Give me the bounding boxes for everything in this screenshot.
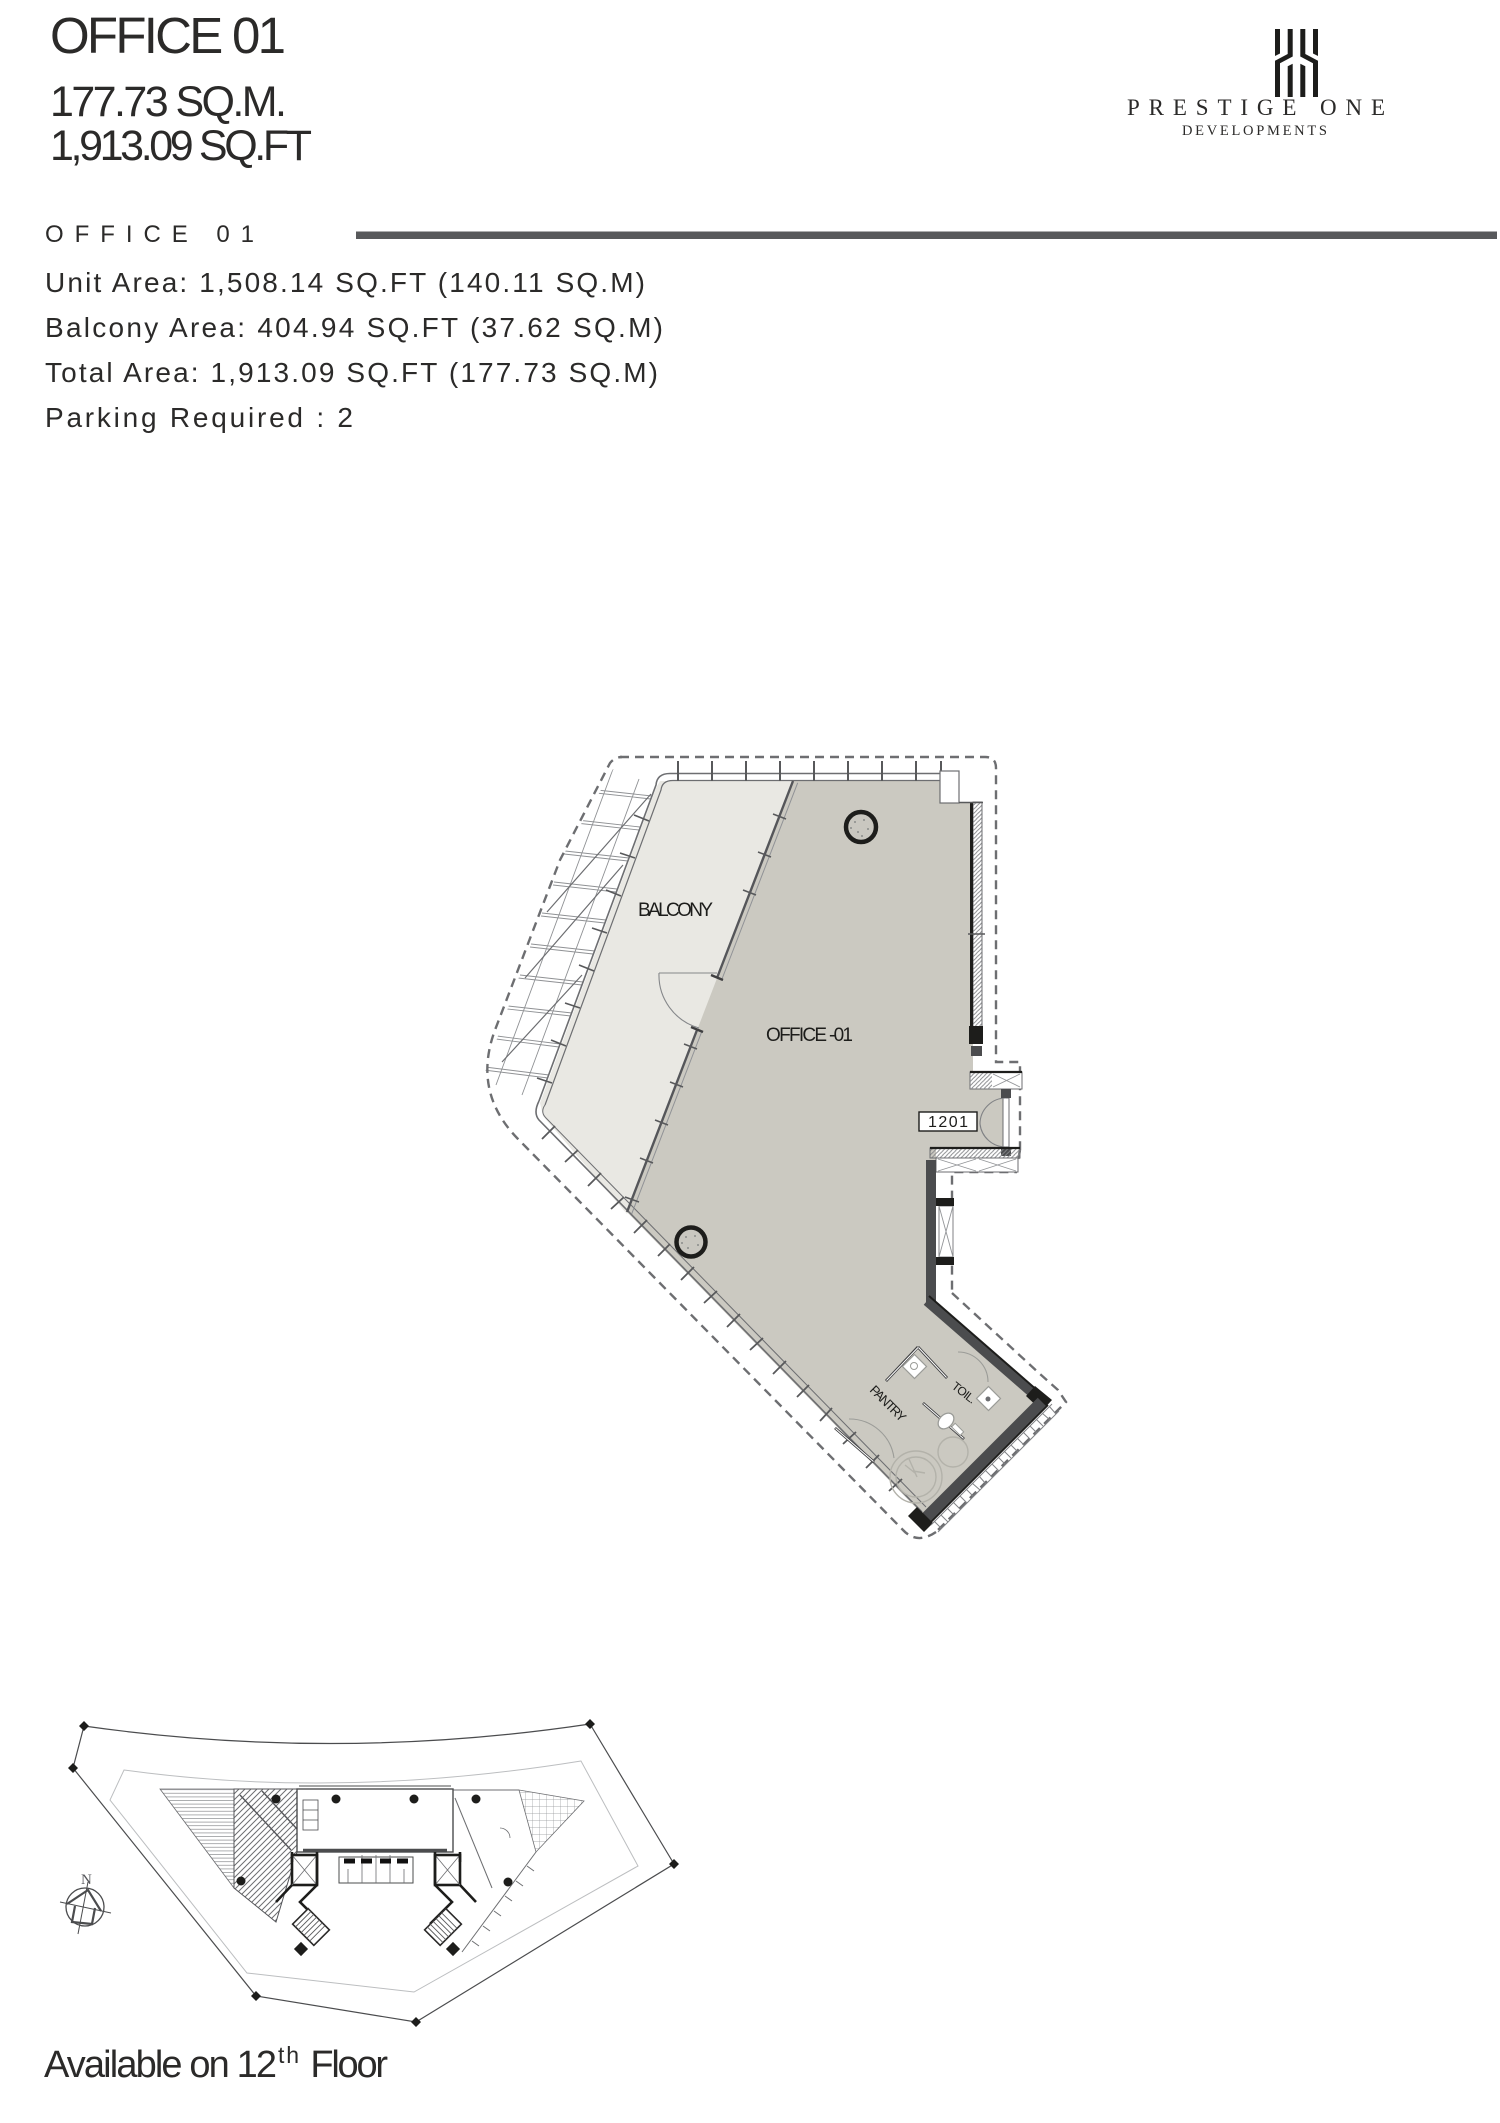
svg-text:OFFICE 01: OFFICE 01 <box>50 7 286 64</box>
svg-text:DEVELOPMENTS: DEVELOPMENTS <box>1182 123 1327 139</box>
svg-text:1201: 1201 <box>928 1114 968 1131</box>
svg-text:Unit Area: 1,508.14 SQ.FT (140: Unit Area: 1,508.14 SQ.FT (140.11 SQ.M) <box>45 267 645 298</box>
svg-text:Available on 12: Available on 12 <box>44 2044 277 2086</box>
svg-text:O F F I C E 0 1: O F F I C E 0 1 <box>45 221 254 248</box>
svg-text:177.73 SQ.M.: 177.73 SQ.M. <box>50 78 287 126</box>
svg-text:1,913.09 SQ.FT: 1,913.09 SQ.FT <box>50 122 312 170</box>
svg-text:Floor: Floor <box>302 2044 388 2086</box>
svg-text:PRESTIGE ONE: PRESTIGE ONE <box>1127 95 1385 120</box>
svg-text:th: th <box>278 2042 299 2068</box>
svg-text:Parking Required : 2: Parking Required : 2 <box>45 402 353 433</box>
svg-text:N: N <box>81 1872 92 1888</box>
svg-text:BALCONY: BALCONY <box>638 900 713 921</box>
svg-text:Balcony Area: 404.94 SQ.FT (37: Balcony Area: 404.94 SQ.FT (37.62 SQ.M) <box>45 312 663 343</box>
svg-text:OFFICE -01: OFFICE -01 <box>766 1025 853 1046</box>
svg-text:Total Area: 1,913.09 SQ.FT (17: Total Area: 1,913.09 SQ.FT (177.73 SQ.M) <box>45 357 658 388</box>
